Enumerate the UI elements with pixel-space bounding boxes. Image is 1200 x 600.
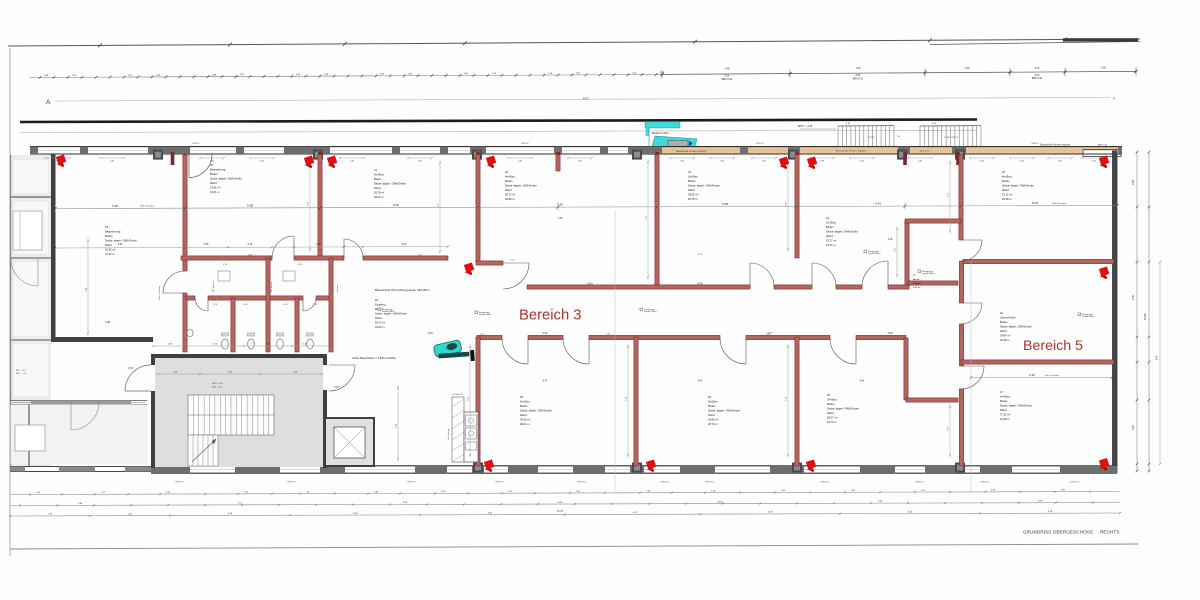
svg-text:17 STG: 17 STG <box>868 137 875 139</box>
svg-text:Helle Trockenbau: Helle Trockenbau <box>1045 375 1059 377</box>
svg-text:1300: 1300 <box>334 387 340 389</box>
svg-text:37.42 m: 37.42 m <box>105 252 114 256</box>
svg-text:4.43: 4.43 <box>698 381 703 383</box>
svg-text:Wand: Wand <box>1000 408 1007 412</box>
svg-text:↗: ↗ <box>1112 96 1115 101</box>
svg-text:5.25: 5.25 <box>112 204 118 208</box>
svg-text:melder 0/Büro: melder 0/Büro <box>479 314 492 316</box>
svg-text:20.48 m: 20.48 m <box>1000 338 1009 342</box>
svg-text:5.49: 5.49 <box>697 282 703 286</box>
svg-text:3.98: 3.98 <box>118 243 123 246</box>
svg-text:Decke: abgeh. OWA-Decke: Decke: abgeh. OWA-Decke <box>210 177 242 181</box>
svg-text:6.47: 6.47 <box>543 381 548 383</box>
svg-text:3er Büro: 3er Büro <box>520 400 531 404</box>
svg-text:0.88: 0.88 <box>1092 161 1096 163</box>
svg-text:4er Büro: 4er Büro <box>1000 395 1011 399</box>
svg-text:Decke: abgeh. OWA-Decke: Decke: abgeh. OWA-Decke <box>505 184 537 188</box>
svg-text:29.12 m: 29.12 m <box>374 195 383 199</box>
svg-text:34.08 m²: 34.08 m² <box>708 418 718 422</box>
svg-text:3.30: 3.30 <box>1132 295 1135 300</box>
svg-text:Wand: Wand <box>105 243 112 247</box>
svg-text:19.61 m: 19.61 m <box>210 190 219 194</box>
svg-text:23.74 m: 23.74 m <box>827 420 836 424</box>
svg-text:23.74 m: 23.74 m <box>826 243 835 247</box>
svg-text:25.88 m: 25.88 m <box>505 197 514 201</box>
svg-text:20.27 m²: 20.27 m² <box>826 239 836 243</box>
svg-text:BRT3 · +4.65: BRT3 · +4.65 <box>798 125 813 128</box>
svg-text:Wand: Wand <box>374 186 381 190</box>
svg-text:39.56 m²: 39.56 m² <box>688 193 698 197</box>
svg-text:0.88: 0.88 <box>260 161 264 163</box>
svg-text:BRH 90.5: BRH 90.5 <box>915 482 925 484</box>
svg-text:2.59: 2.59 <box>887 331 893 335</box>
svg-text:6.42: 6.42 <box>542 331 548 335</box>
svg-text:Boden: Boden <box>688 179 696 183</box>
svg-text:8.29: 8.29 <box>1032 201 1038 205</box>
svg-text:29.01 m: 29.01 m <box>520 422 529 426</box>
svg-text:15.98: 15.98 <box>1144 313 1147 320</box>
svg-text:6.39: 6.39 <box>1029 373 1035 377</box>
svg-text:3er Büro: 3er Büro <box>374 173 385 177</box>
svg-text:Lichte Raumhöhen = 2.68m LICHT: Lichte Raumhöhen = 2.68m LICHTE <box>352 356 396 360</box>
svg-text:2.77: 2.77 <box>767 331 773 335</box>
svg-text:Bereich 3: Bereich 3 <box>519 308 582 324</box>
svg-text:Wand: Wand <box>505 188 512 192</box>
svg-text:BZ1 = +4.2: BZ1 = +4.2 <box>212 383 224 385</box>
svg-text:Wand: Wand <box>520 413 527 417</box>
svg-text:4.30: 4.30 <box>1035 67 1040 70</box>
svg-text:Boden: Boden <box>708 404 716 408</box>
svg-text:Decke: abgeh. OWA-Decke: Decke: abgeh. OWA-Decke <box>827 407 859 411</box>
svg-text:0.88: 0.88 <box>578 161 582 163</box>
svg-text:Decke: abgeh. OWA-Decke: Decke: abgeh. OWA-Decke <box>520 409 552 413</box>
svg-text:melder 0/Büro: melder 0/Büro <box>868 253 881 255</box>
svg-text:BRH 90: BRH 90 <box>1031 143 1039 145</box>
svg-text:40.72 m²: 40.72 m² <box>375 321 385 325</box>
svg-text:Empfang: Empfang <box>375 303 386 307</box>
svg-text:37.32 m²: 37.32 m² <box>1000 413 1010 417</box>
svg-text:34.18 m²: 34.18 m² <box>520 418 530 422</box>
svg-text:0.88: 0.88 <box>110 161 114 163</box>
svg-text:BRH 90.5: BRH 90.5 <box>1070 482 1080 484</box>
svg-text:24.04 m²: 24.04 m² <box>1000 334 1010 338</box>
svg-text:39.78 m²: 39.78 m² <box>374 191 384 195</box>
svg-text:Kaminabzug: Kaminabzug <box>448 429 450 440</box>
svg-text:Wand: Wand <box>708 413 715 417</box>
svg-text:37.97: 37.97 <box>557 510 564 513</box>
svg-text:2.10: 2.10 <box>888 239 893 241</box>
svg-text:Wand: Wand <box>826 234 833 238</box>
svg-text:0.88: 0.88 <box>418 161 422 163</box>
svg-text:Wand: Wand <box>827 411 834 415</box>
svg-text:1.00: 1.00 <box>316 243 321 246</box>
svg-text:0.88: 0.88 <box>762 161 766 163</box>
svg-text:5.90: 5.90 <box>393 203 399 207</box>
svg-text:7.30: 7.30 <box>557 203 563 207</box>
svg-text:0.88: 0.88 <box>1020 161 1024 163</box>
svg-text:BG1 · +4.6: BG1 · +4.6 <box>16 373 27 375</box>
svg-text:melder 0/Büro: melder 0/Büro <box>1082 316 1095 318</box>
svg-text:37.22 m²: 37.22 m² <box>1002 193 1012 197</box>
svg-text:4.30: 4.30 <box>1132 425 1135 430</box>
svg-text:BZ1 · +4.2: BZ1 · +4.2 <box>212 387 223 389</box>
svg-text:0.88: 0.88 <box>1058 161 1062 163</box>
svg-text:Boden: Boden <box>1002 179 1010 183</box>
svg-text:Besprechung: Besprechung <box>105 230 121 234</box>
svg-text:Helle Trockenbau: Helle Trockenbau <box>159 286 161 300</box>
svg-text:6.84: 6.84 <box>860 381 865 383</box>
svg-text:Bestehende Fenster vergittert: Bestehende Fenster vergittert <box>836 150 867 153</box>
svg-text:Boden: Boden <box>210 172 218 176</box>
svg-text:9.82 m²: 9.82 m² <box>913 286 921 289</box>
svg-text:A: A <box>46 99 51 106</box>
svg-text:2.59: 2.59 <box>402 243 407 246</box>
svg-text:0.88: 0.88 <box>980 161 984 163</box>
svg-text:6.67: 6.67 <box>583 97 589 101</box>
svg-text:BRH 90.5: BRH 90.5 <box>287 482 297 484</box>
svg-text:3.58: 3.58 <box>204 243 209 246</box>
svg-text:Decke: abgeh. OWA-Decke: Decke: abgeh. OWA-Decke <box>826 230 858 234</box>
svg-text:WC Herren: WC Herren <box>271 282 273 292</box>
svg-text:1er Büro: 1er Büro <box>826 221 837 225</box>
svg-text:0.88: 0.88 <box>518 161 522 163</box>
svg-text:0.88: 0.88 <box>918 161 922 163</box>
svg-text:melder 0/Büro: melder 0/Büro <box>922 273 935 275</box>
svg-text:5.98: 5.98 <box>722 202 728 206</box>
svg-text:4er Büro: 4er Büro <box>505 175 516 179</box>
svg-text:0.88: 0.88 <box>720 161 724 163</box>
svg-text:BRH 90.5: BRH 90.5 <box>407 482 417 484</box>
svg-text:0.88: 0.88 <box>350 161 354 163</box>
svg-text:Boden: Boden <box>826 225 834 229</box>
svg-text:Monitor mit Aufz.: Monitor mit Aufz. <box>652 132 669 135</box>
svg-text:BRH 90.5: BRH 90.5 <box>660 482 670 484</box>
svg-text:BRH 0.91: BRH 0.91 <box>853 78 864 81</box>
svg-text:Decke: abgeh. OWA-Decke: Decke: abgeh. OWA-Decke <box>105 239 137 243</box>
svg-text:1.25: 1.25 <box>558 218 563 220</box>
svg-text:BZ1 · +4.2: BZ1 · +4.2 <box>16 370 27 372</box>
svg-text:5.98: 5.98 <box>247 203 253 207</box>
svg-text:3er Büro: 3er Büro <box>708 400 719 404</box>
svg-text:4.08: 4.08 <box>105 320 111 324</box>
svg-text:Boden: Boden <box>520 404 528 408</box>
svg-text:melder 0/Büro: melder 0/Büro <box>382 311 395 313</box>
svg-text:3er Büro: 3er Büro <box>688 175 699 179</box>
svg-text:Büroeinheit OG rechts gesamt:: Büroeinheit OG rechts gesamt: 481.05m² <box>375 288 430 292</box>
svg-text:Boden: Boden <box>827 402 835 406</box>
svg-text:0.88: 0.88 <box>860 161 864 163</box>
svg-text:23.95 m²: 23.95 m² <box>210 186 220 190</box>
svg-text:melder 0/Büro: melder 0/Büro <box>644 311 657 313</box>
svg-text:30.18: 30.18 <box>717 501 723 503</box>
svg-text:7H: 7H <box>897 136 900 138</box>
svg-text:0.88: 0.88 <box>680 161 684 163</box>
svg-text:Vorraum: Vorraum <box>337 284 339 292</box>
svg-text:Wand: Wand <box>1002 188 1009 192</box>
svg-text:BRH 0.91: BRH 0.91 <box>722 78 733 81</box>
svg-text:auf Oberlicht: auf Oberlicht <box>452 393 463 396</box>
svg-text:BRH 0.91: BRH 0.91 <box>920 151 930 153</box>
svg-text:BRH 90.5: BRH 90.5 <box>175 482 185 484</box>
svg-text:BRH 90: BRH 90 <box>192 143 200 145</box>
svg-text:BRH 90: BRH 90 <box>756 143 764 145</box>
svg-text:Decke: abgeh. OWA-Decke: Decke: abgeh. OWA-Decke <box>708 409 740 413</box>
svg-text:2.49: 2.49 <box>965 67 970 70</box>
svg-text:Abstell: Abstell <box>913 278 920 281</box>
svg-text:0.88: 0.88 <box>210 161 214 163</box>
svg-text:Boden: Boden <box>105 234 113 238</box>
svg-text:Decke: abgeh. OWA-Decke: Decke: abgeh. OWA-Decke <box>374 182 406 186</box>
svg-text:31.28 m: 31.28 m <box>1000 417 1009 421</box>
svg-text:Helle Trockenbau: Helle Trockenbau <box>1052 202 1067 205</box>
svg-text:1.08: 1.08 <box>1101 67 1106 70</box>
svg-text:WC Damen: WC Damen <box>213 282 215 292</box>
svg-text:Boden: Boden <box>1000 399 1008 403</box>
svg-text:28.74 m: 28.74 m <box>708 422 717 426</box>
svg-text:Decke: abgeh. OWA-Decke: Decke: abgeh. OWA-Decke <box>1000 404 1032 408</box>
svg-text:17 STG 17/27.9: 17 STG 17/27.9 <box>944 137 959 139</box>
svg-text:Decke: abgeh. OWA-Decke: Decke: abgeh. OWA-Decke <box>1002 184 1034 188</box>
svg-text:BRH 90.5: BRH 90.5 <box>820 482 830 484</box>
svg-text:4er Büro: 4er Büro <box>1002 175 1013 179</box>
svg-text:4.38: 4.38 <box>1132 180 1135 185</box>
svg-text:Besprechung: Besprechung <box>210 168 226 172</box>
svg-text:4.43: 4.43 <box>875 202 881 206</box>
svg-text:Boden: Boden <box>1000 320 1008 324</box>
svg-text:4.40: 4.40 <box>856 67 861 70</box>
svg-text:Server/Archiv: Server/Archiv <box>1000 316 1016 320</box>
svg-text:Boden: Boden <box>913 283 920 285</box>
svg-text:Wand: Wand <box>210 181 217 185</box>
svg-text:Wand: Wand <box>1000 329 1007 333</box>
svg-text:43.25 m²: 43.25 m² <box>105 248 115 252</box>
svg-text:BRH 90: BRH 90 <box>521 143 529 145</box>
svg-text:Helle Trockenbau: Helle Trockenbau <box>140 205 155 208</box>
svg-text:BRH 90.5: BRH 90.5 <box>980 482 990 484</box>
svg-text:0.76: 0.76 <box>248 243 253 246</box>
svg-text:GRUNDRISS OBERGESCHOSS: GRUNDRISS OBERGESCHOSS <box>1023 530 1093 535</box>
svg-text:Decke: abgeh. OWA-Decke: Decke: abgeh. OWA-Decke <box>688 184 720 188</box>
svg-text:28.27 m²: 28.27 m² <box>827 416 837 420</box>
svg-text:6.54: 6.54 <box>587 282 593 286</box>
svg-text:Boden: Boden <box>505 179 513 183</box>
svg-text:Bereich 5: Bereich 5 <box>1023 338 1083 354</box>
svg-text:33.63 m: 33.63 m <box>375 325 384 329</box>
svg-text:Boden: Boden <box>374 177 382 181</box>
svg-text:38.73 m²: 38.73 m² <box>505 193 515 197</box>
svg-text:Wand: Wand <box>375 316 382 320</box>
svg-text:BRH 0.91: BRH 0.91 <box>1032 77 1043 80</box>
svg-text:4.64: 4.64 <box>427 331 433 335</box>
svg-text:BRH 90.5: BRH 90.5 <box>495 482 505 484</box>
svg-text:4.38: 4.38 <box>725 68 730 71</box>
svg-text:Decke: abgeh. OWA-Decke: Decke: abgeh. OWA-Decke <box>1000 325 1032 329</box>
svg-text:8.62: 8.62 <box>1157 355 1159 360</box>
svg-text:25.28 m: 25.28 m <box>1002 197 1011 201</box>
svg-text:25.78 m: 25.78 m <box>688 197 697 201</box>
svg-text:Wand: Wand <box>688 188 695 192</box>
svg-text:BRH 90.5: BRH 90.5 <box>577 482 587 484</box>
svg-text:1300: 1300 <box>128 368 134 370</box>
svg-text:3er Büro: 3er Büro <box>827 398 838 402</box>
svg-text:RECHTS: RECHTS <box>1100 530 1120 535</box>
svg-text:BRH 90.5: BRH 90.5 <box>705 482 715 484</box>
svg-text:0.88: 0.88 <box>820 161 824 163</box>
